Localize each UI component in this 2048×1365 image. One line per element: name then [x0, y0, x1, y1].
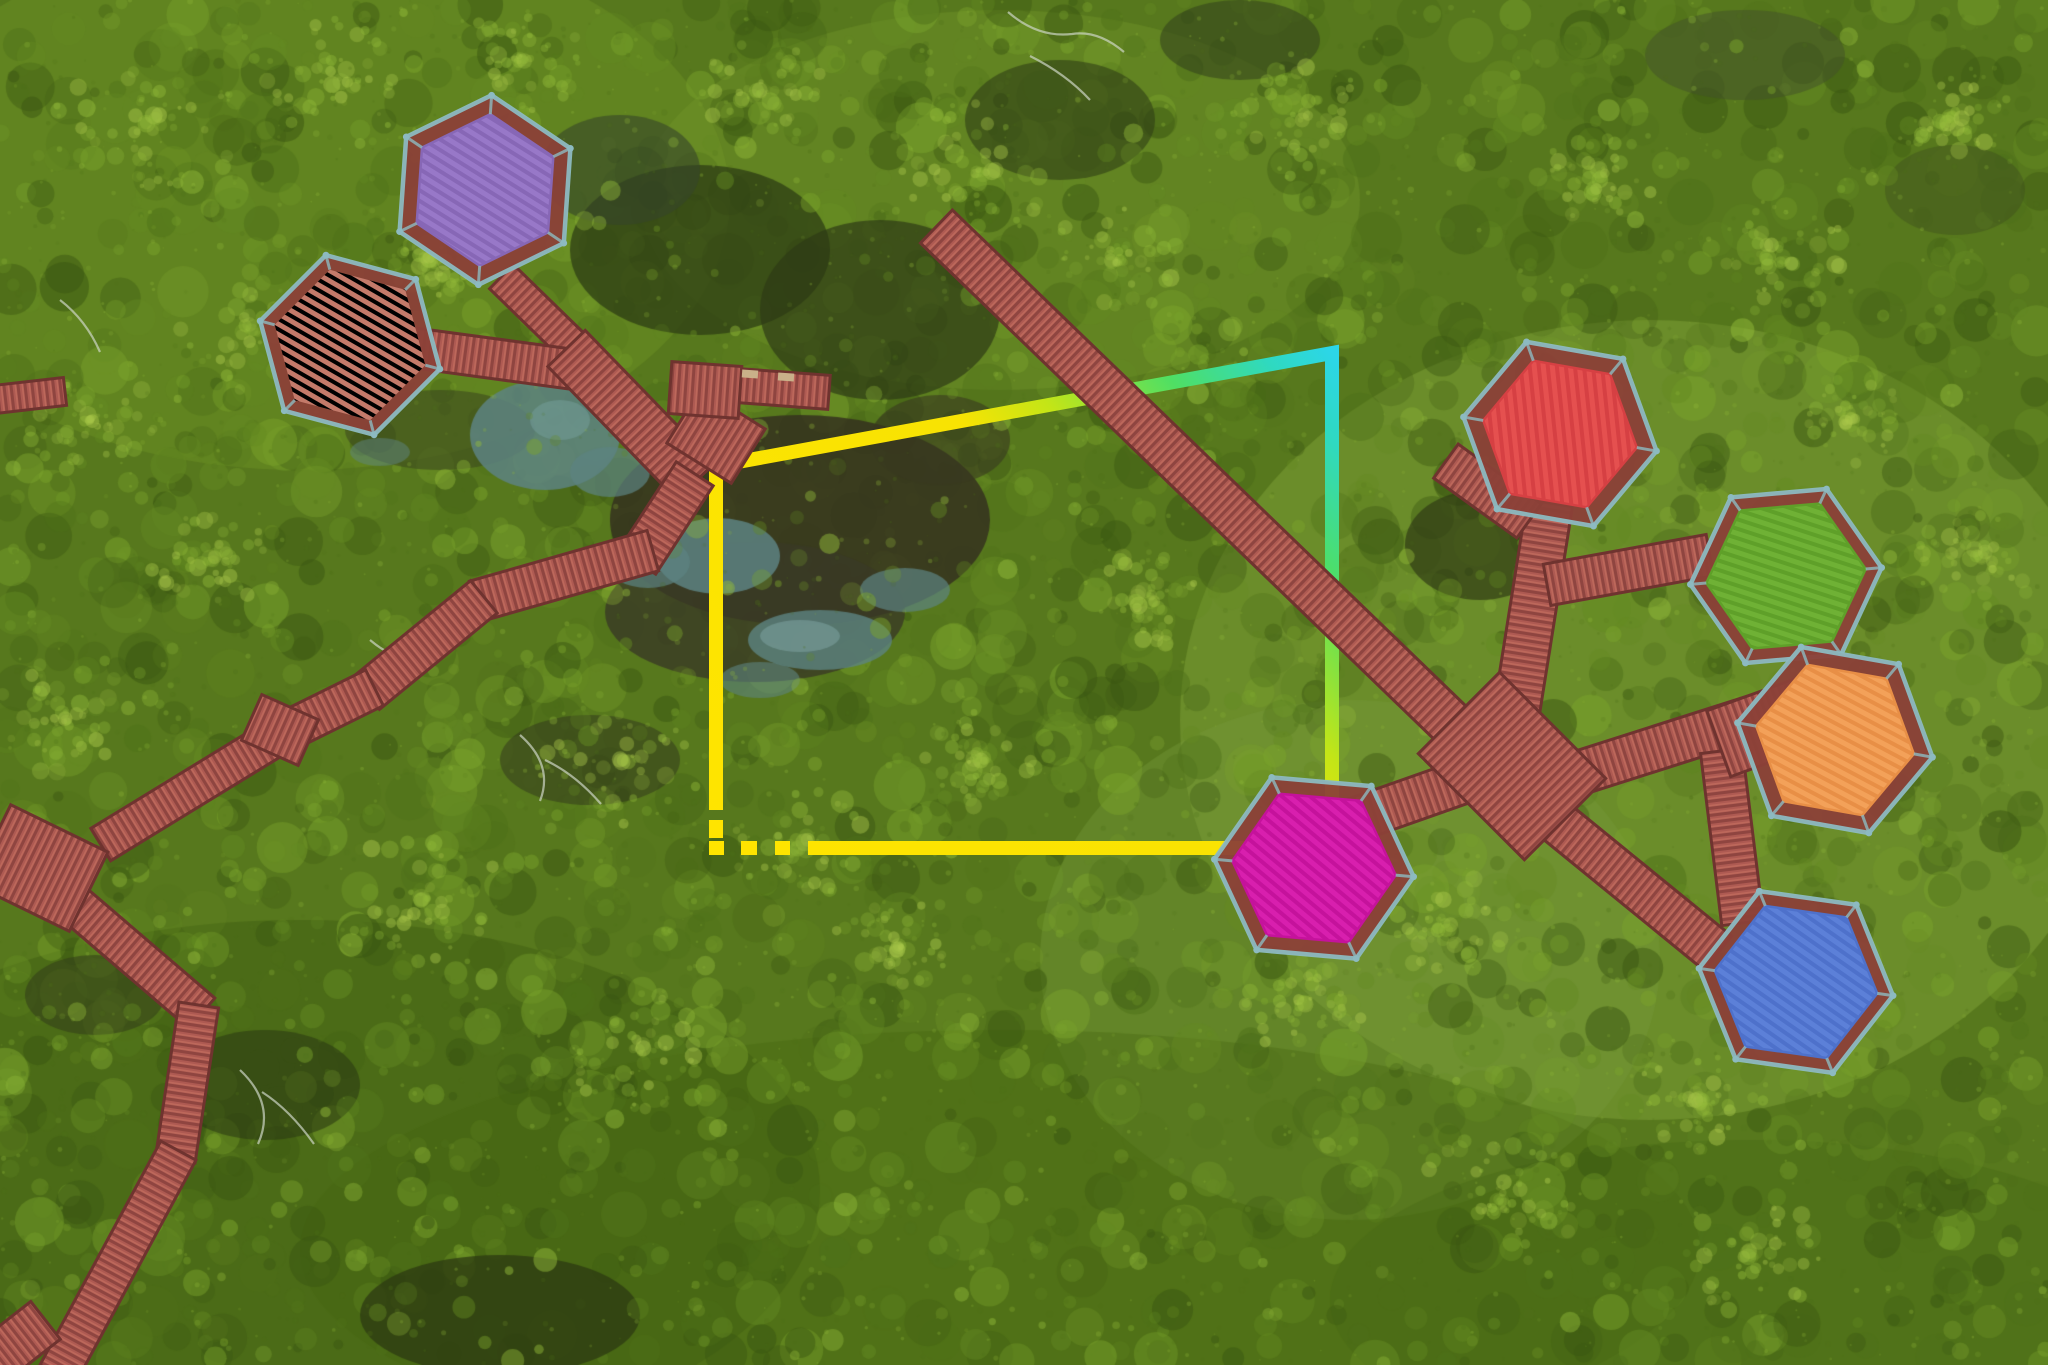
railing-spoke	[1396, 875, 1414, 877]
boardwalk-deck	[0, 378, 67, 415]
boardwalk-platform	[668, 362, 741, 419]
selection-rectangle-overlay	[709, 353, 1332, 848]
railing-spoke	[478, 266, 479, 285]
aerial-photo-scene	[0, 0, 2048, 1365]
boardwalk-deck	[469, 530, 658, 621]
railing-spoke	[490, 95, 491, 114]
boardwalk-segment	[155, 1002, 218, 1163]
park-structures-and-annotation	[0, 0, 2048, 1365]
dead-branch	[60, 300, 100, 352]
boardwalk-segment	[0, 378, 67, 415]
boardwalk-segment	[40, 1141, 196, 1365]
pavilion-purple	[396, 92, 574, 288]
pavilion-green	[1687, 486, 1885, 667]
boardwalk-deck	[1543, 534, 1713, 605]
dead-branch	[1030, 56, 1090, 100]
dead-branch	[1008, 12, 1124, 52]
railing-spoke	[1690, 583, 1706, 584]
dead-branch	[520, 735, 601, 804]
boardwalk-deck	[40, 1141, 196, 1365]
platform-deck	[668, 362, 741, 419]
boardwalk-deck	[1534, 798, 1732, 970]
dead-branch	[240, 1070, 314, 1144]
selection-outline-solid	[716, 353, 1332, 812]
boardwalk-segment	[1543, 534, 1713, 605]
railing-spoke	[1214, 859, 1232, 861]
railing-spoke	[1866, 568, 1882, 569]
boardwalk-segment	[469, 530, 658, 621]
pavilion-orange	[1734, 644, 1936, 837]
boardwalk-segment	[1534, 798, 1732, 970]
selection-outline-corner-dash	[709, 820, 723, 838]
pavilion-salmon	[257, 252, 443, 438]
bench	[778, 372, 795, 381]
bench	[742, 369, 759, 378]
boardwalk-deck	[155, 1002, 218, 1163]
